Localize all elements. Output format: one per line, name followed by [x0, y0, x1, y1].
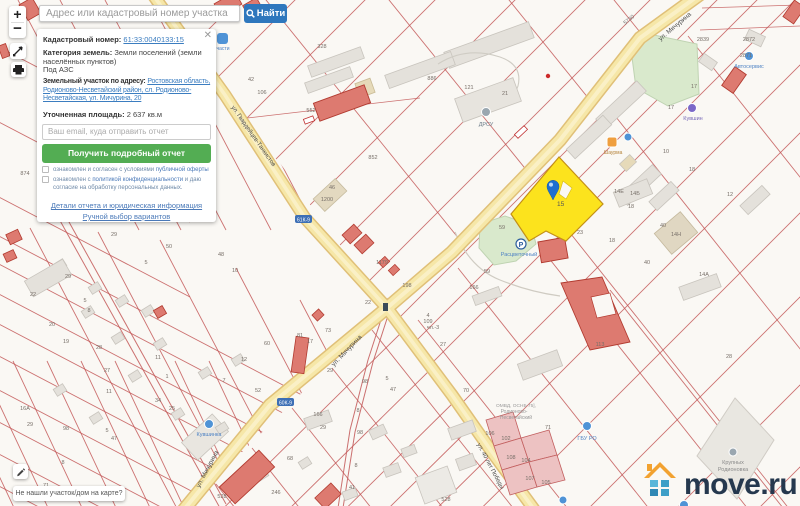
svg-text:552: 552: [306, 108, 315, 114]
svg-text:1: 1: [165, 374, 168, 380]
svg-text:46: 46: [329, 185, 335, 191]
svg-text:34: 34: [155, 398, 161, 404]
svg-text:Расцветочный: Расцветочный: [501, 251, 538, 258]
svg-text:166: 166: [469, 285, 478, 291]
svg-text:886: 886: [427, 76, 436, 82]
svg-text:105: 105: [541, 480, 550, 486]
svg-text:852: 852: [368, 155, 377, 161]
svg-text:5: 5: [83, 298, 86, 304]
svg-text:113: 113: [596, 342, 605, 348]
svg-text:98: 98: [357, 430, 363, 436]
svg-text:8: 8: [87, 308, 90, 314]
svg-text:чл.-3: чл.-3: [427, 325, 440, 331]
svg-text:Несветайский: Несветайский: [500, 414, 532, 421]
svg-text:61К-9: 61К-9: [297, 217, 310, 223]
svg-text:528: 528: [217, 494, 226, 500]
svg-text:12: 12: [241, 357, 247, 363]
svg-text:41: 41: [349, 485, 355, 491]
svg-text:104: 104: [521, 458, 530, 464]
svg-text:Шаурма: Шаурма: [604, 150, 623, 156]
svg-text:27: 27: [104, 368, 110, 374]
svg-text:60К-9: 60К-9: [279, 400, 292, 406]
svg-text:22: 22: [365, 300, 371, 306]
svg-text:2871: 2871: [740, 53, 752, 59]
svg-text:16А: 16А: [20, 406, 30, 412]
svg-text:Кувшин: Кувшин: [683, 116, 702, 122]
svg-text:18: 18: [609, 238, 615, 244]
svg-text:50: 50: [166, 244, 172, 250]
svg-text:8: 8: [356, 408, 359, 414]
svg-text:29: 29: [327, 368, 333, 374]
svg-text:17: 17: [668, 105, 674, 111]
svg-text:Автосервис: Автосервис: [734, 64, 764, 70]
svg-text:10: 10: [232, 268, 238, 274]
svg-text:2872: 2872: [743, 37, 755, 43]
svg-text:1179: 1179: [376, 260, 388, 266]
svg-text:874: 874: [20, 171, 29, 177]
svg-text:70: 70: [463, 388, 469, 394]
svg-text:166: 166: [313, 412, 322, 418]
svg-text:121: 121: [464, 85, 473, 91]
svg-text:17: 17: [691, 84, 697, 90]
svg-text:23: 23: [577, 230, 583, 236]
svg-text:части: части: [217, 46, 230, 52]
svg-text:59: 59: [499, 225, 505, 231]
svg-text:328: 328: [317, 44, 326, 50]
svg-text:10: 10: [663, 149, 669, 155]
svg-text:ГБУ РО: ГБУ РО: [577, 436, 597, 442]
svg-text:19: 19: [63, 339, 69, 345]
svg-text:5: 5: [105, 428, 108, 434]
svg-text:22: 22: [30, 292, 36, 298]
svg-text:18: 18: [628, 204, 634, 210]
svg-text:106: 106: [485, 431, 494, 437]
svg-text:29: 29: [65, 274, 71, 280]
svg-text:48: 48: [218, 252, 224, 258]
svg-text:1200: 1200: [321, 197, 333, 203]
svg-text:102: 102: [501, 436, 510, 442]
svg-text:11: 11: [106, 389, 112, 395]
svg-text:246: 246: [271, 490, 280, 496]
svg-text:27: 27: [440, 342, 446, 348]
svg-text:108: 108: [506, 455, 515, 461]
svg-text:5: 5: [385, 376, 388, 382]
svg-text:18: 18: [689, 167, 695, 173]
svg-text:198: 198: [402, 283, 411, 289]
svg-text:15: 15: [557, 201, 565, 208]
svg-text:Кувшинка: Кувшинка: [197, 432, 223, 438]
svg-text:29: 29: [320, 425, 326, 431]
svg-text:25: 25: [169, 406, 175, 412]
svg-text:20: 20: [49, 322, 55, 328]
svg-text:29: 29: [111, 232, 117, 238]
svg-text:12: 12: [727, 192, 733, 198]
svg-text:8: 8: [354, 463, 357, 469]
svg-text:40: 40: [644, 260, 650, 266]
svg-text:2839: 2839: [697, 37, 709, 43]
svg-text:40: 40: [660, 223, 666, 229]
svg-text:21: 21: [502, 91, 508, 97]
svg-text:17: 17: [307, 339, 313, 345]
svg-text:ДРСУ: ДРСУ: [479, 122, 494, 128]
svg-text:29: 29: [27, 422, 33, 428]
svg-text:107: 107: [525, 476, 534, 482]
svg-text:47: 47: [111, 436, 117, 442]
svg-text:8: 8: [61, 460, 64, 466]
svg-text:68: 68: [287, 456, 293, 462]
svg-text:P: P: [519, 242, 524, 249]
svg-text:14Н: 14Н: [671, 232, 681, 238]
svg-text:42: 42: [248, 77, 254, 83]
svg-text:60: 60: [264, 341, 270, 347]
svg-text:47: 47: [390, 387, 396, 393]
svg-text:59: 59: [484, 269, 490, 275]
svg-text:98: 98: [63, 426, 69, 432]
svg-text:14Е: 14Е: [614, 189, 624, 195]
svg-text:528: 528: [441, 497, 450, 503]
svg-text:98: 98: [362, 379, 368, 385]
svg-text:52: 52: [255, 388, 261, 394]
svg-text:73: 73: [325, 328, 331, 334]
svg-text:106: 106: [257, 90, 266, 96]
svg-text:71: 71: [545, 425, 551, 431]
svg-text:14Б: 14Б: [630, 191, 640, 197]
svg-text:28: 28: [726, 354, 732, 360]
svg-text:7: 7: [222, 378, 225, 384]
svg-text:28: 28: [96, 345, 102, 351]
svg-text:81: 81: [297, 333, 303, 339]
svg-text:14А: 14А: [699, 272, 709, 278]
svg-text:11: 11: [155, 355, 161, 361]
svg-text:5: 5: [144, 260, 147, 266]
